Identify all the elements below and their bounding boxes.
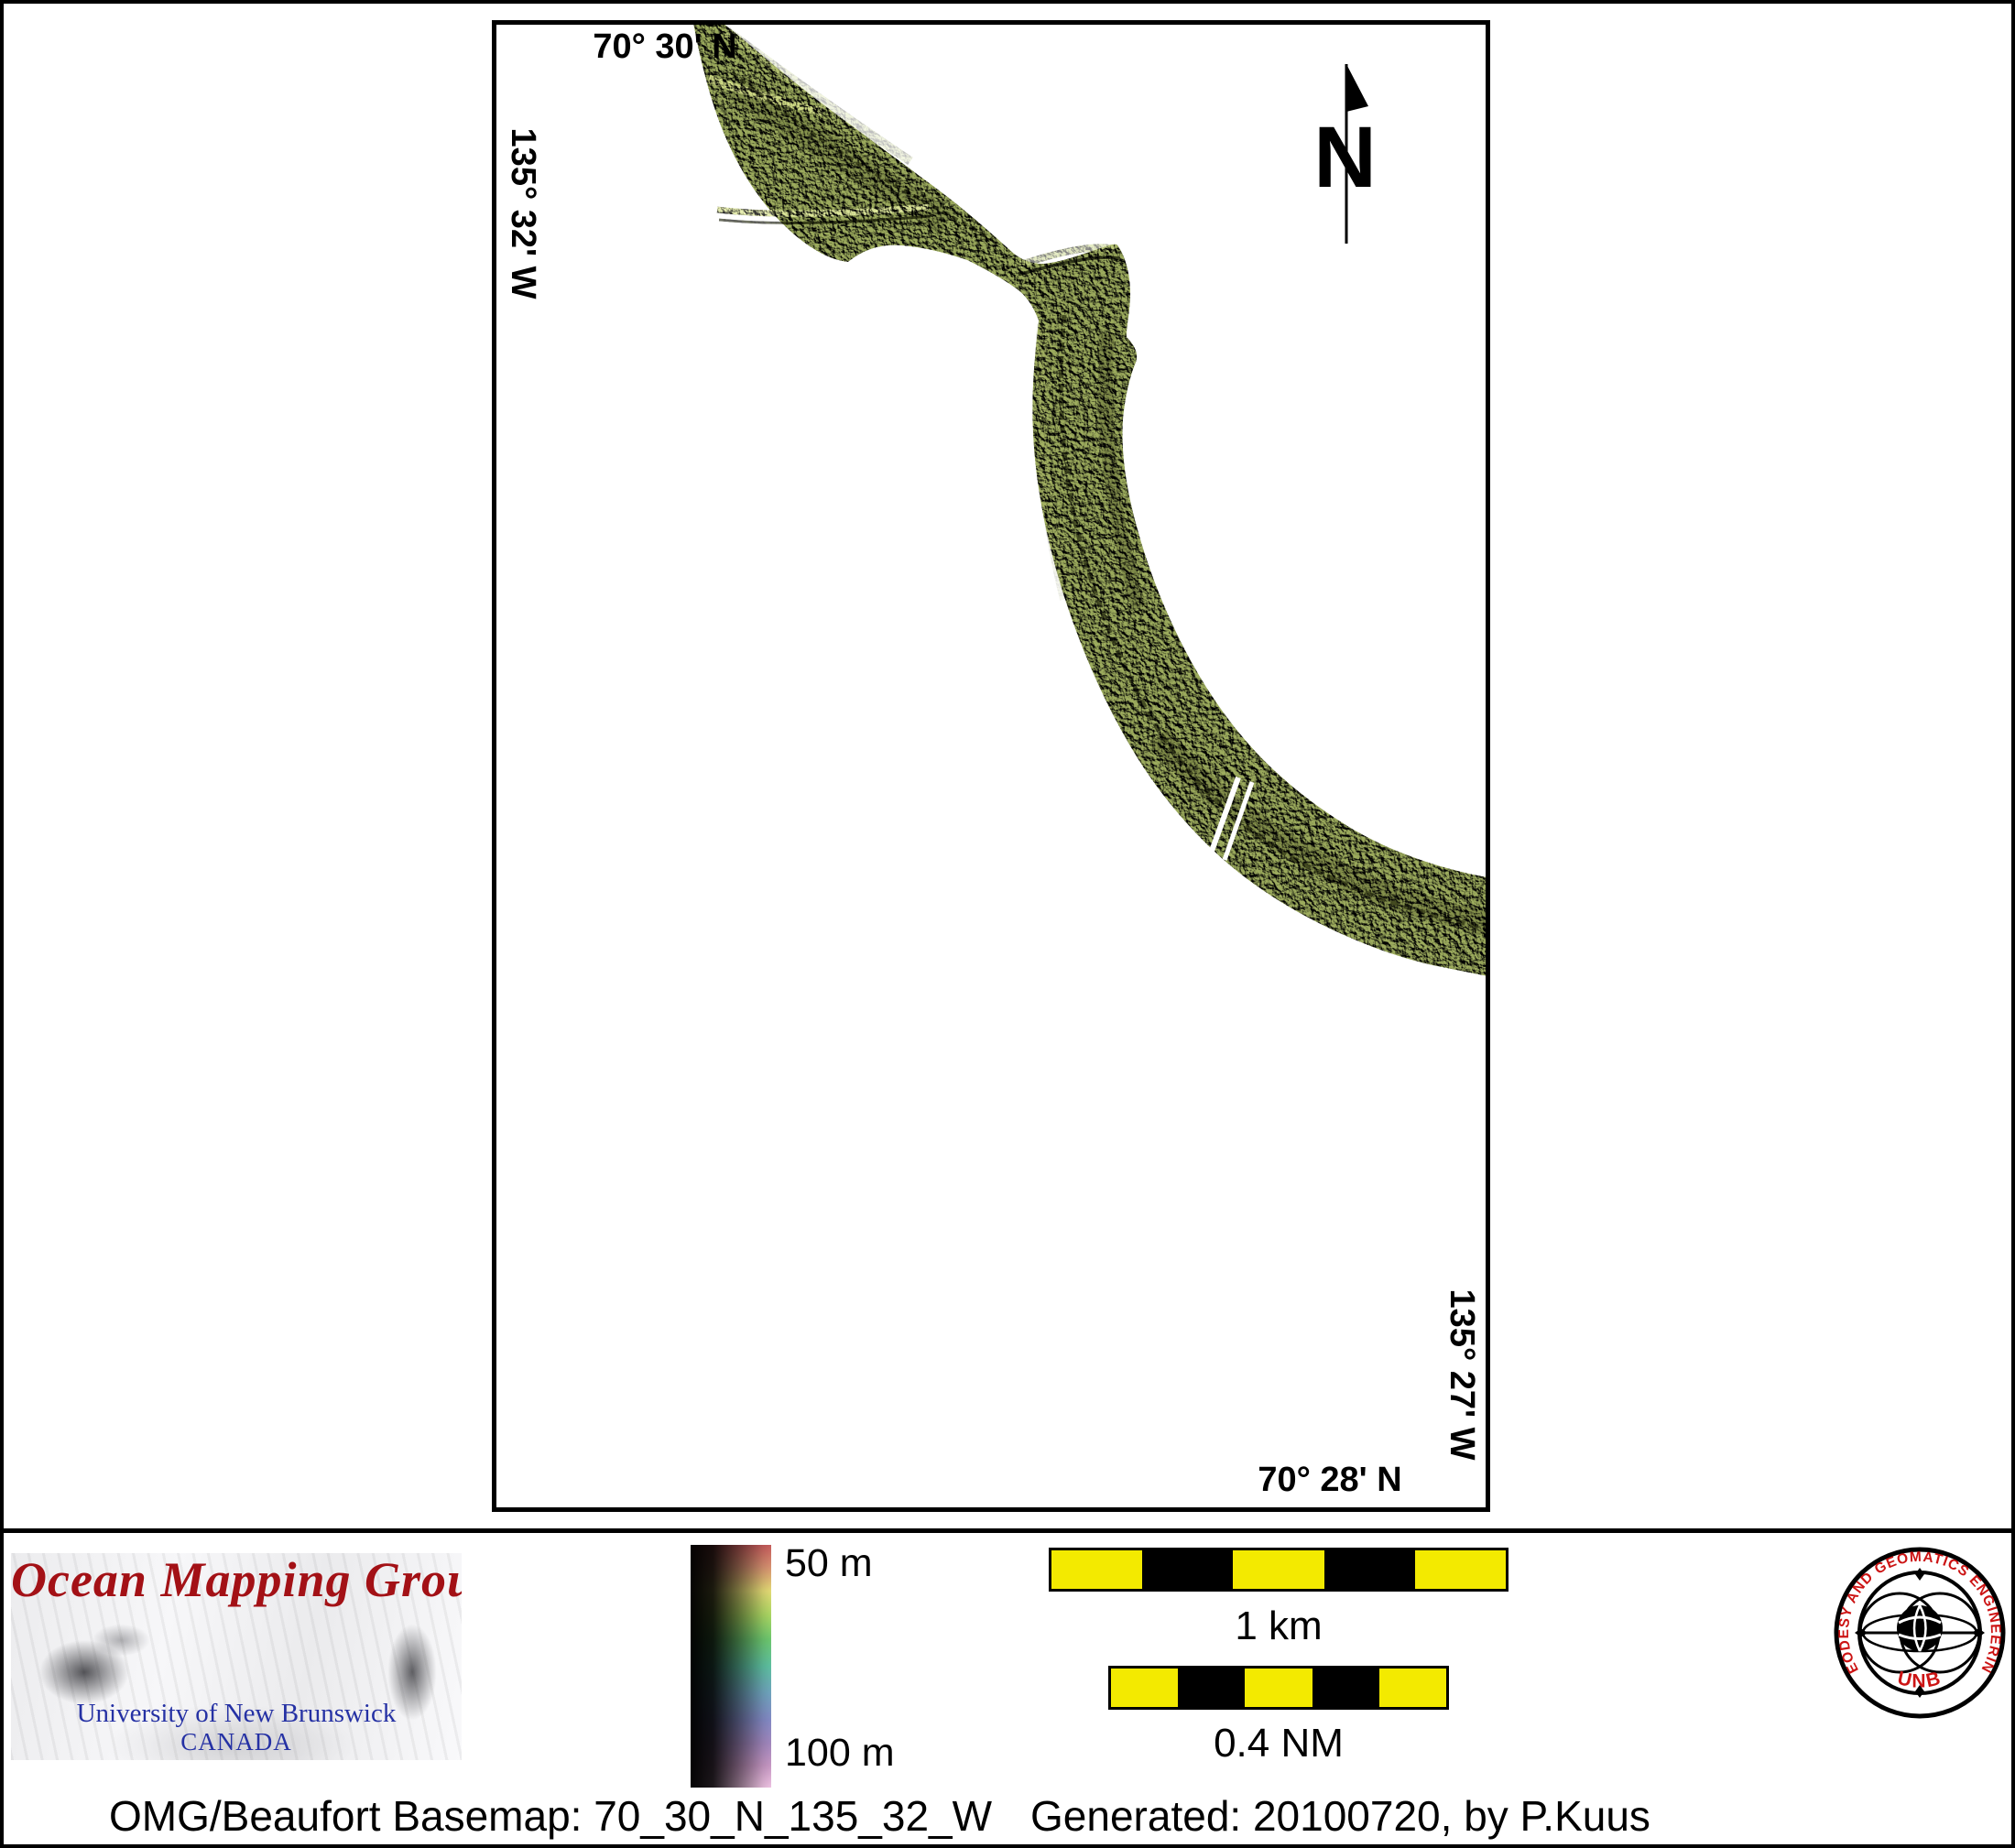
north-arrow-label: N [1297, 112, 1393, 203]
scale-bar-km-label: 1 km [1049, 1604, 1509, 1648]
omg-logo-title: Ocean Mapping Group [11, 1553, 462, 1606]
scale-bar-segment [1324, 1550, 1415, 1589]
unb-seal: GEODESY AND GEOMATICS ENGINEERING UNB [1833, 1546, 2007, 1720]
scale-bar-nm [1108, 1666, 1449, 1710]
omg-logo: Ocean Mapping Group University of New Br… [11, 1553, 462, 1760]
graticule-label-bottom: 70° 28' N [1229, 1462, 1431, 1498]
seal-unb-text: UNB [1895, 1668, 1944, 1691]
graticule-label-top: 70° 30' N [564, 28, 766, 65]
scale-bar-segment [1051, 1550, 1142, 1589]
scale-bar-segment [1415, 1550, 1506, 1589]
map-frame [492, 20, 1490, 1512]
scale-bar-segment [1312, 1669, 1379, 1707]
scale-bar-nm-label: 0.4 NM [1108, 1722, 1449, 1766]
graticule-label-right: 135° 27' W [1443, 1265, 1480, 1484]
graticule-label-left: 135° 32' W [505, 103, 541, 323]
scale-bar-segment [1142, 1550, 1233, 1589]
map-sheet: 70° 30' N 135° 32' W 135° 27' W 70° 28' … [0, 0, 2015, 1848]
panel-separator [4, 1528, 2015, 1533]
scale-bar-segment [1379, 1669, 1446, 1707]
scale-bar-segment [1245, 1669, 1312, 1707]
scale-bar-segment [1178, 1669, 1245, 1707]
scale-bar-km [1049, 1548, 1509, 1592]
seal-globe [1897, 1605, 1943, 1651]
footer-basemap-text: OMG/Beaufort Basemap: 70_30_N_135_32_W [109, 1792, 992, 1840]
svg-text:UNB: UNB [1895, 1668, 1944, 1691]
omg-logo-country: CANADA [11, 1729, 462, 1755]
footer-generated-text: Generated: 20100720, by P.Kuus [1030, 1792, 1650, 1840]
depth-scale-top-label: 50 m [785, 1543, 873, 1583]
scale-bar-segment [1111, 1669, 1178, 1707]
depth-colorbar [691, 1545, 771, 1788]
depth-scale-bottom-label: 100 m [785, 1733, 895, 1773]
omg-logo-university: University of New Brunswick [11, 1700, 462, 1727]
footer-caption: OMG/Beaufort Basemap: 70_30_N_135_32_W G… [109, 1792, 1650, 1840]
scale-bar-segment [1233, 1550, 1323, 1589]
